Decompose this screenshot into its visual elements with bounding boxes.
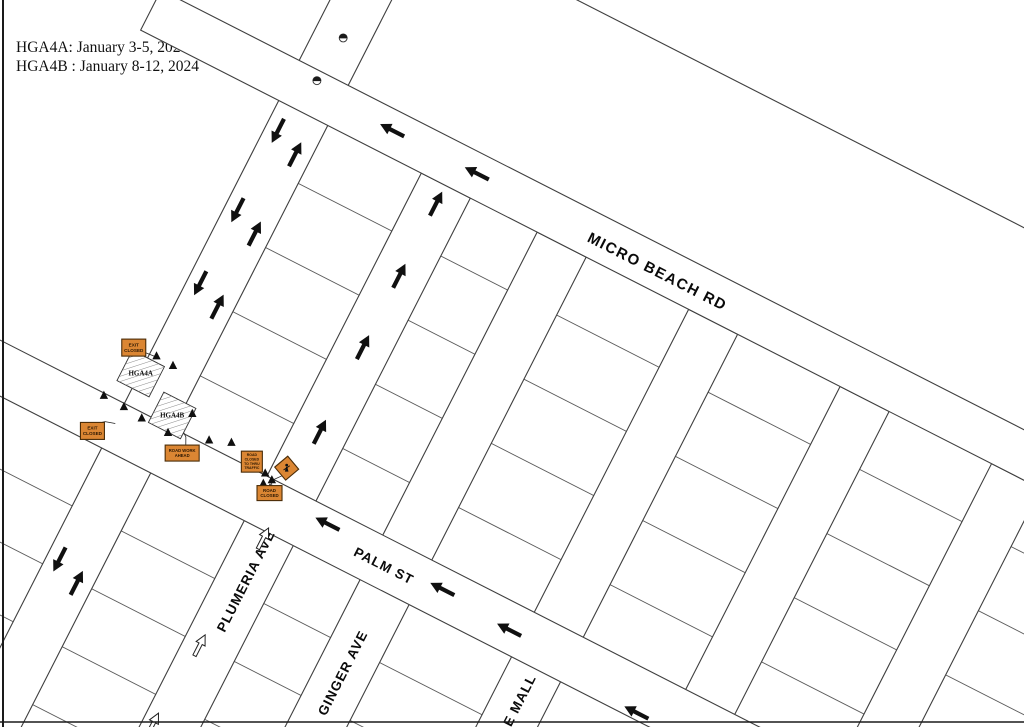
sign-text-line: CLOSED: [260, 493, 278, 498]
sign-text-line: EXIT: [87, 426, 97, 431]
sign-text-line: CLOSED: [83, 431, 103, 436]
sign-road-closed: ROADCLOSED: [257, 486, 282, 501]
barricade-symbol: [313, 77, 321, 85]
work-zone-label-hga4a: HGA4A: [128, 370, 153, 378]
sign-text-line: EXIT: [129, 342, 139, 347]
road-network: MICRO BEACH RDPALM STPLUMERIA AVEGINGER …: [0, 0, 1024, 727]
traffic-cone: [205, 435, 213, 443]
sign-exit-closed-south: EXITCLOSED: [80, 422, 104, 439]
traffic-control-map: MICRO BEACH RDPALM STPLUMERIA AVEGINGER …: [0, 0, 1024, 727]
sign-road-work-ahead: ROAD WORKAHEAD: [165, 445, 199, 461]
traffic-cone: [227, 438, 235, 446]
barricade-symbol: [339, 34, 347, 42]
sign-text-line: CLOSED: [124, 348, 144, 353]
sign-exit-closed-north: EXITCLOSED: [122, 339, 146, 356]
sign-text-line: AHEAD: [175, 453, 190, 458]
work-zone-label-hga4b: HGA4B: [160, 411, 184, 419]
sign-road-closed-thru: ROADCLOSEDTO THRUTRAFFIC: [241, 451, 262, 472]
traffic-control-plan-page: HGA4A: January 3-5, 2024 HGA4B : January…: [0, 0, 1024, 727]
sign-text-line: TRAFFIC: [244, 466, 259, 470]
